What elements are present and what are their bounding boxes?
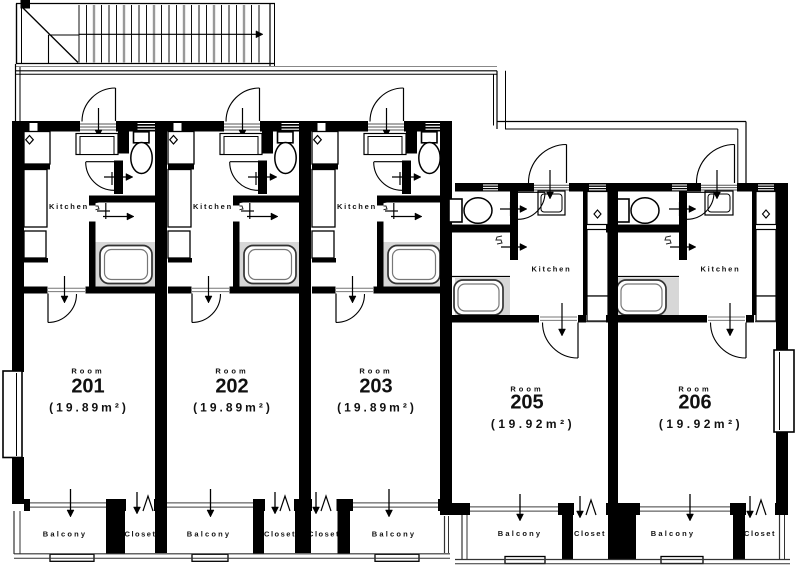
svg-text:(19.89m²): (19.89m²) bbox=[49, 401, 129, 415]
svg-text:Balcony: Balcony bbox=[498, 529, 543, 538]
svg-text:205: 205 bbox=[510, 392, 543, 414]
svg-text:Room: Room bbox=[71, 367, 104, 376]
svg-text:(19.92m²): (19.92m²) bbox=[659, 417, 743, 431]
svg-text:202: 202 bbox=[215, 376, 248, 398]
svg-text:(19.92m²): (19.92m²) bbox=[491, 417, 575, 431]
svg-text:206: 206 bbox=[678, 392, 711, 414]
svg-text:Kitchen: Kitchen bbox=[700, 265, 740, 274]
svg-text:Balcony: Balcony bbox=[651, 529, 696, 538]
svg-text:Balcony: Balcony bbox=[372, 530, 417, 539]
svg-text:203: 203 bbox=[359, 376, 392, 398]
svg-text:Room: Room bbox=[215, 367, 248, 376]
svg-text:(19.89m²): (19.89m²) bbox=[193, 401, 273, 415]
svg-text:Balcony: Balcony bbox=[43, 530, 88, 539]
svg-text:201: 201 bbox=[71, 376, 104, 398]
svg-text:Balcony: Balcony bbox=[187, 530, 232, 539]
svg-text:Closet: Closet bbox=[574, 529, 606, 538]
svg-text:Closet: Closet bbox=[125, 530, 157, 539]
svg-text:Kitchen: Kitchen bbox=[337, 202, 377, 211]
svg-text:Closet: Closet bbox=[264, 530, 296, 539]
svg-text:Room: Room bbox=[359, 367, 392, 376]
svg-text:Closet: Closet bbox=[308, 530, 340, 539]
svg-text:Kitchen: Kitchen bbox=[193, 202, 233, 211]
svg-text:(19.89m²): (19.89m²) bbox=[337, 401, 417, 415]
svg-text:Kitchen: Kitchen bbox=[49, 202, 89, 211]
svg-text:Closet: Closet bbox=[744, 529, 776, 538]
svg-text:Kitchen: Kitchen bbox=[531, 265, 571, 274]
